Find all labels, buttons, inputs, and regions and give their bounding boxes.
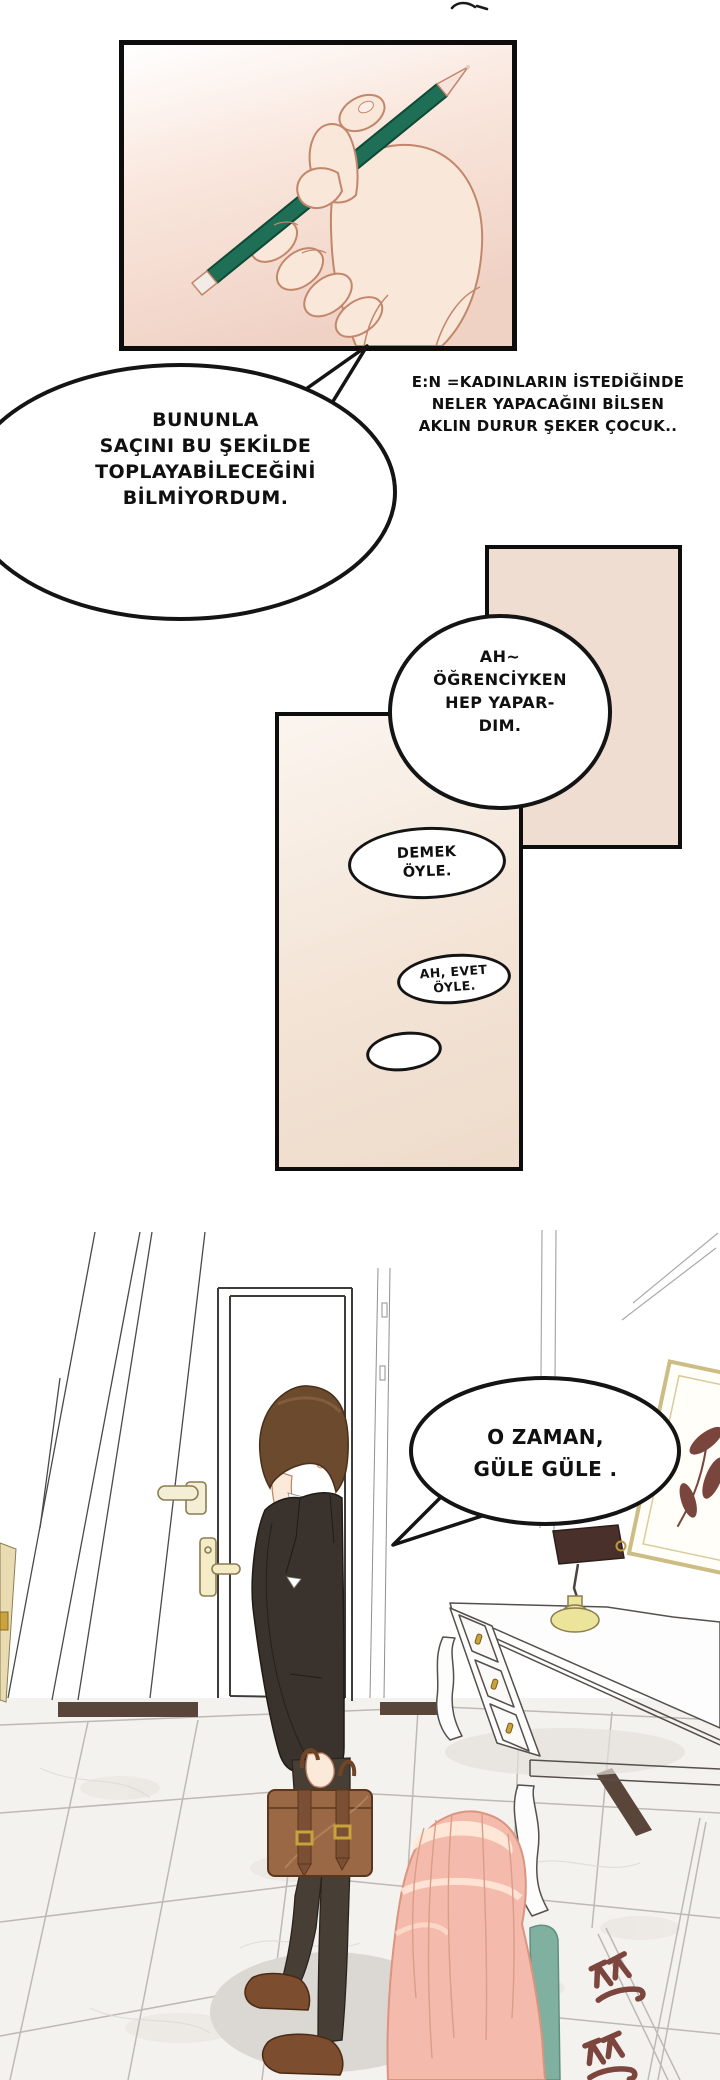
hand-pencil-art [124,45,512,346]
bubble-line: AH~ [392,645,608,668]
door-knob [0,1612,8,1630]
lamp-base [551,1608,599,1632]
editor-note-line: NELER YAPACAĞINI BİLSEN [392,393,704,415]
bubble-line: O ZAMAN, [428,1421,663,1453]
bubble-line: HEP YAPAR- [392,691,608,714]
bubble-line: TOPLAYABİLECEĞİNİ [28,459,383,485]
comic-page: BUNUNLA SAÇINI BU ŞEKİLDE TOPLAYABİLECEĞ… [0,0,720,2080]
speech-bubble-6-text: O ZAMAN, GÜLE GÜLE . [428,1421,663,1485]
bubble-line: ÖYLE. [433,978,476,996]
hand [306,1753,334,1787]
bubble-line: ÖĞRENCİYKEN [392,668,608,691]
bubble-line: GÜLE GÜLE . [428,1453,663,1485]
top-edge-cutoff-mark [448,0,492,12]
editor-note-line: AKLIN DURUR ŞEKER ÇOCUK.. [392,415,704,437]
bubble-line: SAÇINI BU ŞEKİLDE [28,433,383,459]
bubble-line: BİLMİYORDUM. [28,485,383,511]
open-door [0,1232,205,1702]
chain-lock [158,1482,206,1514]
scene-hallway [0,1228,720,2080]
panel-hand-closeup [119,40,517,351]
bubble-line: DEMEK [397,843,457,864]
editor-note: E:N =KADINLARIN İSTEDİĞİNDE NELER YAPACA… [392,371,704,437]
speech-bubble-2-text: AH~ ÖĞRENCİYKEN HEP YAPAR- DIM. [392,645,608,737]
editor-note-line: E:N =KADINLARIN İSTEDİĞİNDE [392,371,704,393]
bubble-line: BUNUNLA [28,407,383,433]
bubble-line: ÖYLE. [403,862,453,883]
speech-bubble-1-text: BUNUNLA SAÇINI BU ŞEKİLDE TOPLAYABİLECEĞ… [28,407,383,511]
bubble-line: DIM. [392,714,608,737]
